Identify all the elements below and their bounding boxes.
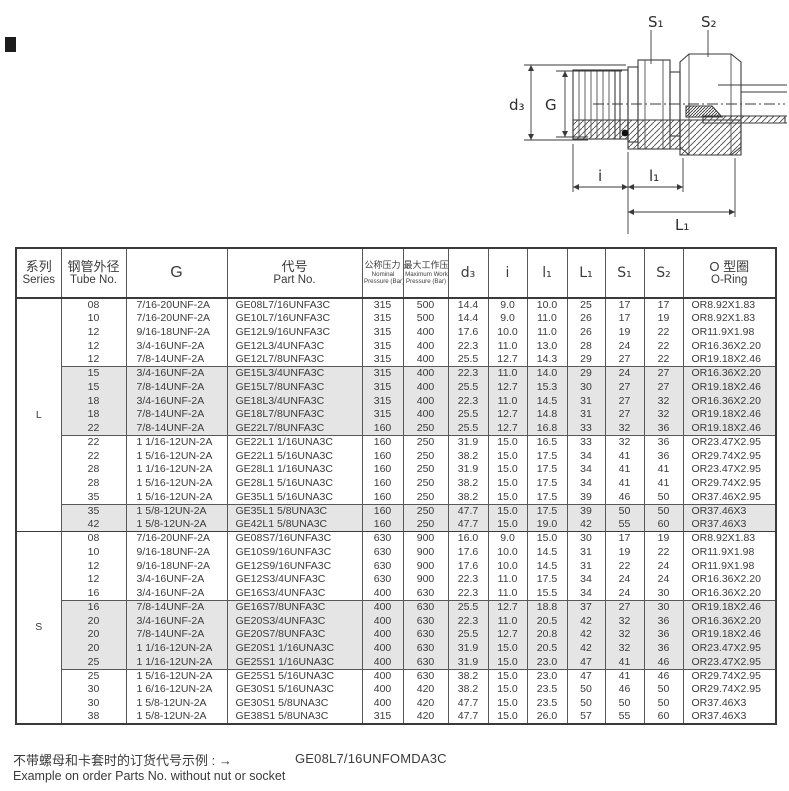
table-row: 157/8-14UNF-2AGE15L7/8UNFA3C31540025.512… [16,381,776,395]
cell: 22 [644,353,683,367]
cell: 13.0 [527,339,567,353]
cell: 47.7 [448,711,488,725]
cell: GE16S3/4UNFA3C [227,587,362,601]
cell: 46 [644,656,683,670]
cell: GE12S9/16UNFA3C [227,559,362,573]
cell: 16.0 [448,532,488,546]
cell: 26 [567,326,605,340]
cell: 22.3 [448,614,488,628]
cell: 39 [567,504,605,518]
dim-label-s1: S₁ [648,13,664,31]
cell: 17 [605,312,644,326]
cell: 400 [403,326,448,340]
cell: OR16.36X2.20 [683,614,776,628]
cell: 36 [644,614,683,628]
cell: 315 [362,408,403,422]
catalog-page: S₁ S₂ d₃ G i l₁ L₁ 系列 Series 钢管外径 [0,0,789,791]
cell: 10.0 [527,298,567,312]
cell: 10 [61,546,126,560]
cell: 15.0 [488,669,527,683]
cell: 24 [605,587,644,601]
cell: OR16.36X2.20 [683,339,776,353]
cell: 7/8-14UNF-2A [126,381,227,395]
table-row: 221 5/16-12UN-2AGE22L1 5/16UNA3C16025038… [16,449,776,463]
cell: 400 [362,601,403,615]
cell: 400 [403,339,448,353]
cell: GE25S1 5/16UNA3C [227,669,362,683]
cell: 1 5/16-12UN-2A [126,669,227,683]
cell: 630 [403,587,448,601]
cell: 7/16-20UNF-2A [126,298,227,312]
cell: 900 [403,559,448,573]
cell: 160 [362,504,403,518]
cell: 10.0 [488,546,527,560]
table-row: 281 1/16-12UN-2AGE28L1 1/16UNA3C16025031… [16,463,776,477]
cell: 17.5 [527,491,567,505]
cell: 15.0 [488,477,527,491]
cell: 22.3 [448,573,488,587]
cell: 315 [362,312,403,326]
cell: 3/4-16UNF-2A [126,573,227,587]
cell: 400 [403,394,448,408]
cell: 315 [362,298,403,312]
cell: 160 [362,463,403,477]
cell: 17 [605,532,644,546]
cell: 11.0 [488,367,527,381]
table-row: 421 5/8-12UN-2AGE42L1 5/8UNA3C16025047.7… [16,518,776,532]
table-row: 153/4-16UNF-2AGE15L3/4UNFA3C31540022.311… [16,367,776,381]
cell: 24 [644,573,683,587]
cell: 630 [403,669,448,683]
cell: GE12L3/4UNFA3C [227,339,362,353]
cell: OR23.47X2.95 [683,463,776,477]
cell: OR23.47X2.95 [683,642,776,656]
table-row: 109/16-18UNF-2AGE10S9/16UNFA3C63090017.6… [16,546,776,560]
cell: 1 1/16-12UN-2A [126,463,227,477]
cell: 42 [567,628,605,642]
cell: 19 [605,326,644,340]
cell: GE10S9/16UNFA3C [227,546,362,560]
cell: 1 5/16-12UN-2A [126,491,227,505]
cell: 30 [61,683,126,697]
cell: 14.3 [527,353,567,367]
cell: GE10L7/16UNFA3C [227,312,362,326]
cell: 7/8-14UNF-2A [126,408,227,422]
cell: 15.0 [488,463,527,477]
cell: OR8.92X1.83 [683,312,776,326]
cell: 12.7 [488,381,527,395]
cell: 47.7 [448,504,488,518]
header-i: i [488,248,527,298]
cell: 630 [362,573,403,587]
cell: 36 [644,628,683,642]
cell: 3/4-16UNF-2A [126,367,227,381]
cell: 19 [644,312,683,326]
cell: 18 [61,394,126,408]
cell: 22.3 [448,587,488,601]
cell: 18.8 [527,601,567,615]
cell: 12 [61,326,126,340]
cell: 12.7 [488,628,527,642]
cell: 31.9 [448,436,488,450]
header-l1: l₁ [527,248,567,298]
cell: 250 [403,463,448,477]
cell: GE15L7/8UNFA3C [227,381,362,395]
cell: 22.3 [448,394,488,408]
cell: 160 [362,449,403,463]
cell: 27 [605,601,644,615]
cell: 14.5 [527,559,567,573]
cell: GE16S7/8UNFA3C [227,601,362,615]
cell: OR19.18X2.46 [683,353,776,367]
cell: 20 [61,642,126,656]
cell: GE12S3/4UNFA3C [227,573,362,587]
cell: 400 [362,669,403,683]
cell: 15.5 [527,587,567,601]
cell: 400 [362,683,403,697]
cell: 1 5/8-12UN-2A [126,504,227,518]
series-label: L [16,298,61,532]
cell: 34 [567,587,605,601]
cell: 42 [61,518,126,532]
cell: 400 [362,697,403,711]
cell: OR29.74X2.95 [683,669,776,683]
cell: 315 [362,353,403,367]
cell: 46 [605,683,644,697]
cell: 14.0 [527,367,567,381]
cell: 38.2 [448,669,488,683]
cell: 500 [403,312,448,326]
cell: 3/4-16UNF-2A [126,394,227,408]
cell: 160 [362,422,403,436]
cell: 15.0 [488,697,527,711]
cell: 41 [644,463,683,477]
cell: 47 [567,669,605,683]
cell: 17.5 [527,463,567,477]
cell: OR23.47X2.95 [683,436,776,450]
cell: 1 1/16-12UN-2A [126,436,227,450]
cell: 9/16-18UNF-2A [126,326,227,340]
cell: 400 [362,628,403,642]
cell: 36 [644,449,683,463]
cell: 900 [403,573,448,587]
cell: 400 [403,367,448,381]
cell: OR37.46X3 [683,504,776,518]
cell: 55 [605,711,644,725]
cell: 160 [362,491,403,505]
cell: GE20S7/8UNFA3C [227,628,362,642]
cell: 08 [61,532,126,546]
cell: 11.0 [488,339,527,353]
table-row: 129/16-18UNF-2AGE12L9/16UNFA3C31540017.6… [16,326,776,340]
cell: 315 [362,711,403,725]
cell: 400 [362,656,403,670]
cell: OR11.9X1.98 [683,326,776,340]
cell: 12.7 [488,353,527,367]
footer-example-part: GE08L7/16UNFOMDA3C [295,751,447,766]
cell: 900 [403,546,448,560]
cell: 15.0 [488,491,527,505]
cell: 15.0 [488,518,527,532]
dim-label-g: G [545,96,557,114]
cell: 420 [403,697,448,711]
cell: 41 [644,477,683,491]
cell: 14.5 [527,394,567,408]
cell: 60 [644,518,683,532]
footer-note-en: Example on order Parts No. without nut o… [13,769,285,783]
cell: 50 [644,504,683,518]
cell: 16.8 [527,422,567,436]
cell: OR16.36X2.20 [683,394,776,408]
table-row: 251 1/16-12UN-2AGE25S1 1/16UNA3C40063031… [16,656,776,670]
cell: 14.4 [448,312,488,326]
cell: 160 [362,518,403,532]
table-row: 281 5/16-12UN-2AGE28L1 5/16UNA3C16025038… [16,477,776,491]
cell: OR37.46X3 [683,697,776,711]
cell: 12 [61,339,126,353]
cell: 41 [605,669,644,683]
cell: 36 [644,422,683,436]
cell: 31.9 [448,463,488,477]
cell: 17 [605,298,644,312]
header-max-pressure: 最大工作压力 Maximum Working Pressure (Bar) [403,248,448,298]
cell: 23.0 [527,669,567,683]
cell: 15.0 [488,436,527,450]
table-row: 251 5/16-12UN-2AGE25S1 5/16UNA3C40063038… [16,669,776,683]
cell: 55 [605,518,644,532]
cell: 25.5 [448,628,488,642]
cell: 400 [362,642,403,656]
cell: 630 [362,559,403,573]
cell: 38.2 [448,477,488,491]
cell: 27 [644,381,683,395]
cell: 22.3 [448,339,488,353]
cell: 22 [644,326,683,340]
technical-drawing: S₁ S₂ d₃ G i l₁ L₁ [498,2,789,240]
cell: 15 [61,381,126,395]
cell: 42 [567,518,605,532]
cell: OR16.36X2.20 [683,367,776,381]
cell: 34 [567,463,605,477]
cell: 30 [644,601,683,615]
table-row: 107/16-20UNF-2AGE10L7/16UNFA3C31550014.4… [16,312,776,326]
cell: 3/4-16UNF-2A [126,614,227,628]
registration-mark [5,37,16,52]
table-row: S087/16-20UNF-2AGE08S7/16UNFA3C63090016.… [16,532,776,546]
cell: 12 [61,559,126,573]
dim-label-l1: l₁ [649,167,659,185]
cell: 34 [567,573,605,587]
cell: 31 [567,394,605,408]
cell: GE38S1 5/8UNA3C [227,711,362,725]
cell: 15.0 [488,683,527,697]
cell: 27 [605,353,644,367]
cell: OR29.74X2.95 [683,683,776,697]
cell: 900 [403,532,448,546]
cell: 50 [644,697,683,711]
cell: 36 [644,436,683,450]
cell: 29 [567,367,605,381]
cell: 3/4-16UNF-2A [126,587,227,601]
cell: 15.0 [488,504,527,518]
cell: 315 [362,339,403,353]
cell: OR8.92X1.83 [683,532,776,546]
cell: OR11.9X1.98 [683,559,776,573]
dim-label-L1: L₁ [675,216,689,234]
cell: 630 [403,601,448,615]
cell: OR37.46X3 [683,711,776,725]
cell: 11.0 [488,614,527,628]
cell: 20.8 [527,628,567,642]
cell: 12.7 [488,408,527,422]
cell: 57 [567,711,605,725]
cell: 34 [567,449,605,463]
cell: 60 [644,711,683,725]
cell: 12 [61,353,126,367]
cell: 41 [605,463,644,477]
dim-label-i: i [598,167,602,185]
cell: 32 [605,642,644,656]
cell: 9/16-18UNF-2A [126,559,227,573]
cell: 17.6 [448,559,488,573]
cell: 630 [403,628,448,642]
cell: 28 [61,477,126,491]
cell: 30 [644,587,683,601]
dim-label-d3: d₃ [509,96,525,114]
cell: GE22L1 1/16UNA3C [227,436,362,450]
table-row: 301 5/8-12UN-2AGE30S1 5/8UNA3C40042047.7… [16,697,776,711]
header-d3: d₃ [448,248,488,298]
cell: GE08L7/16UNFA3C [227,298,362,312]
cell: OR19.18X2.46 [683,408,776,422]
table-header-row: 系列 Series 钢管外径 Tube No. G 代号 Part No. 公称… [16,248,776,298]
cell: 50 [567,683,605,697]
cell: 250 [403,449,448,463]
cell: 25 [61,669,126,683]
cell: 20 [61,614,126,628]
cell: 47.7 [448,697,488,711]
cell: OR19.18X2.46 [683,628,776,642]
cell: 420 [403,683,448,697]
cell: 50 [644,491,683,505]
cell: 24 [605,367,644,381]
cell: GE30S1 5/8UNA3C [227,697,362,711]
cell: 27 [605,394,644,408]
cell: 30 [61,697,126,711]
cell: 315 [362,394,403,408]
table-row: 301 6/16-12UN-2AGE30S1 5/16UNA3C40042038… [16,683,776,697]
cell: 25.5 [448,422,488,436]
cell: 630 [362,546,403,560]
cell: 7/16-20UNF-2A [126,312,227,326]
cell: 1 1/16-12UN-2A [126,656,227,670]
table-row: 123/4-16UNF-2AGE12S3/4UNFA3C63090022.311… [16,573,776,587]
cell: OR37.46X2.95 [683,491,776,505]
header-series: 系列 Series [16,248,61,298]
cell: 17.5 [527,504,567,518]
cell: 22 [605,559,644,573]
cell: 19.0 [527,518,567,532]
cell: OR16.36X2.20 [683,587,776,601]
cell: 17.5 [527,477,567,491]
cell: 10.0 [488,326,527,340]
header-tube: 钢管外径 Tube No. [61,248,126,298]
cell: 26 [567,312,605,326]
cell: 28 [61,463,126,477]
footer-note-zh: 不带螺母和卡套时的订货代号示例 : → [13,750,232,769]
cell: 250 [403,436,448,450]
cell: 3/4-16UNF-2A [126,339,227,353]
cell: 28 [567,339,605,353]
cell: 27 [644,367,683,381]
cell: 18 [61,408,126,422]
table-row: 207/8-14UNF-2AGE20S7/8UNFA3C40063025.512… [16,628,776,642]
cell: GE20S3/4UNFA3C [227,614,362,628]
cell: 17.5 [527,573,567,587]
cell: 39 [567,491,605,505]
cell: 23.0 [527,656,567,670]
table-row: 381 5/8-12UN-2AGE38S1 5/8UNA3C31542047.7… [16,711,776,725]
cell: 25.5 [448,601,488,615]
cell: 1 5/16-12UN-2A [126,449,227,463]
cell: 25 [567,298,605,312]
cell: 08 [61,298,126,312]
cell: GE42L1 5/8UNA3C [227,518,362,532]
cell: GE18L3/4UNFA3C [227,394,362,408]
cell: 35 [61,504,126,518]
table-row: 123/4-16UNF-2AGE12L3/4UNFA3C31540022.311… [16,339,776,353]
cell: 500 [403,298,448,312]
cell: 1 5/16-12UN-2A [126,477,227,491]
cell: 16 [61,601,126,615]
cell: 315 [362,326,403,340]
cell: 315 [362,367,403,381]
table-row: 221 1/16-12UN-2AGE22L1 1/16UNA3C16025031… [16,436,776,450]
cell: GE25S1 1/16UNA3C [227,656,362,670]
cell: 315 [362,381,403,395]
cell: 22 [61,422,126,436]
cell: 630 [403,642,448,656]
cell: 31.9 [448,656,488,670]
cell: 7/8-14UNF-2A [126,601,227,615]
cell: 7/8-14UNF-2A [126,422,227,436]
cell: 38.2 [448,683,488,697]
cell: 33 [567,436,605,450]
cell: 37 [567,601,605,615]
cell: 24 [644,559,683,573]
cell: 17 [644,298,683,312]
cell: 22 [61,449,126,463]
cell: 400 [403,353,448,367]
cell: 17.5 [527,449,567,463]
cell: 1 6/16-12UN-2A [126,683,227,697]
cell: 15.0 [488,642,527,656]
cell: 160 [362,436,403,450]
cell: 34 [567,477,605,491]
cell: 11.0 [488,573,527,587]
table-row: 201 1/16-12UN-2AGE20S1 1/16UNA3C40063031… [16,642,776,656]
dim-label-s2: S₂ [701,13,717,31]
cell: 630 [403,656,448,670]
cell: 47 [567,656,605,670]
cell: 11.0 [527,312,567,326]
arrow-icon: → [219,753,232,768]
cell: GE35L1 5/16UNA3C [227,491,362,505]
cell: 19 [644,532,683,546]
cell: 32 [605,422,644,436]
cell: 17.6 [448,326,488,340]
cell: 14.5 [527,546,567,560]
